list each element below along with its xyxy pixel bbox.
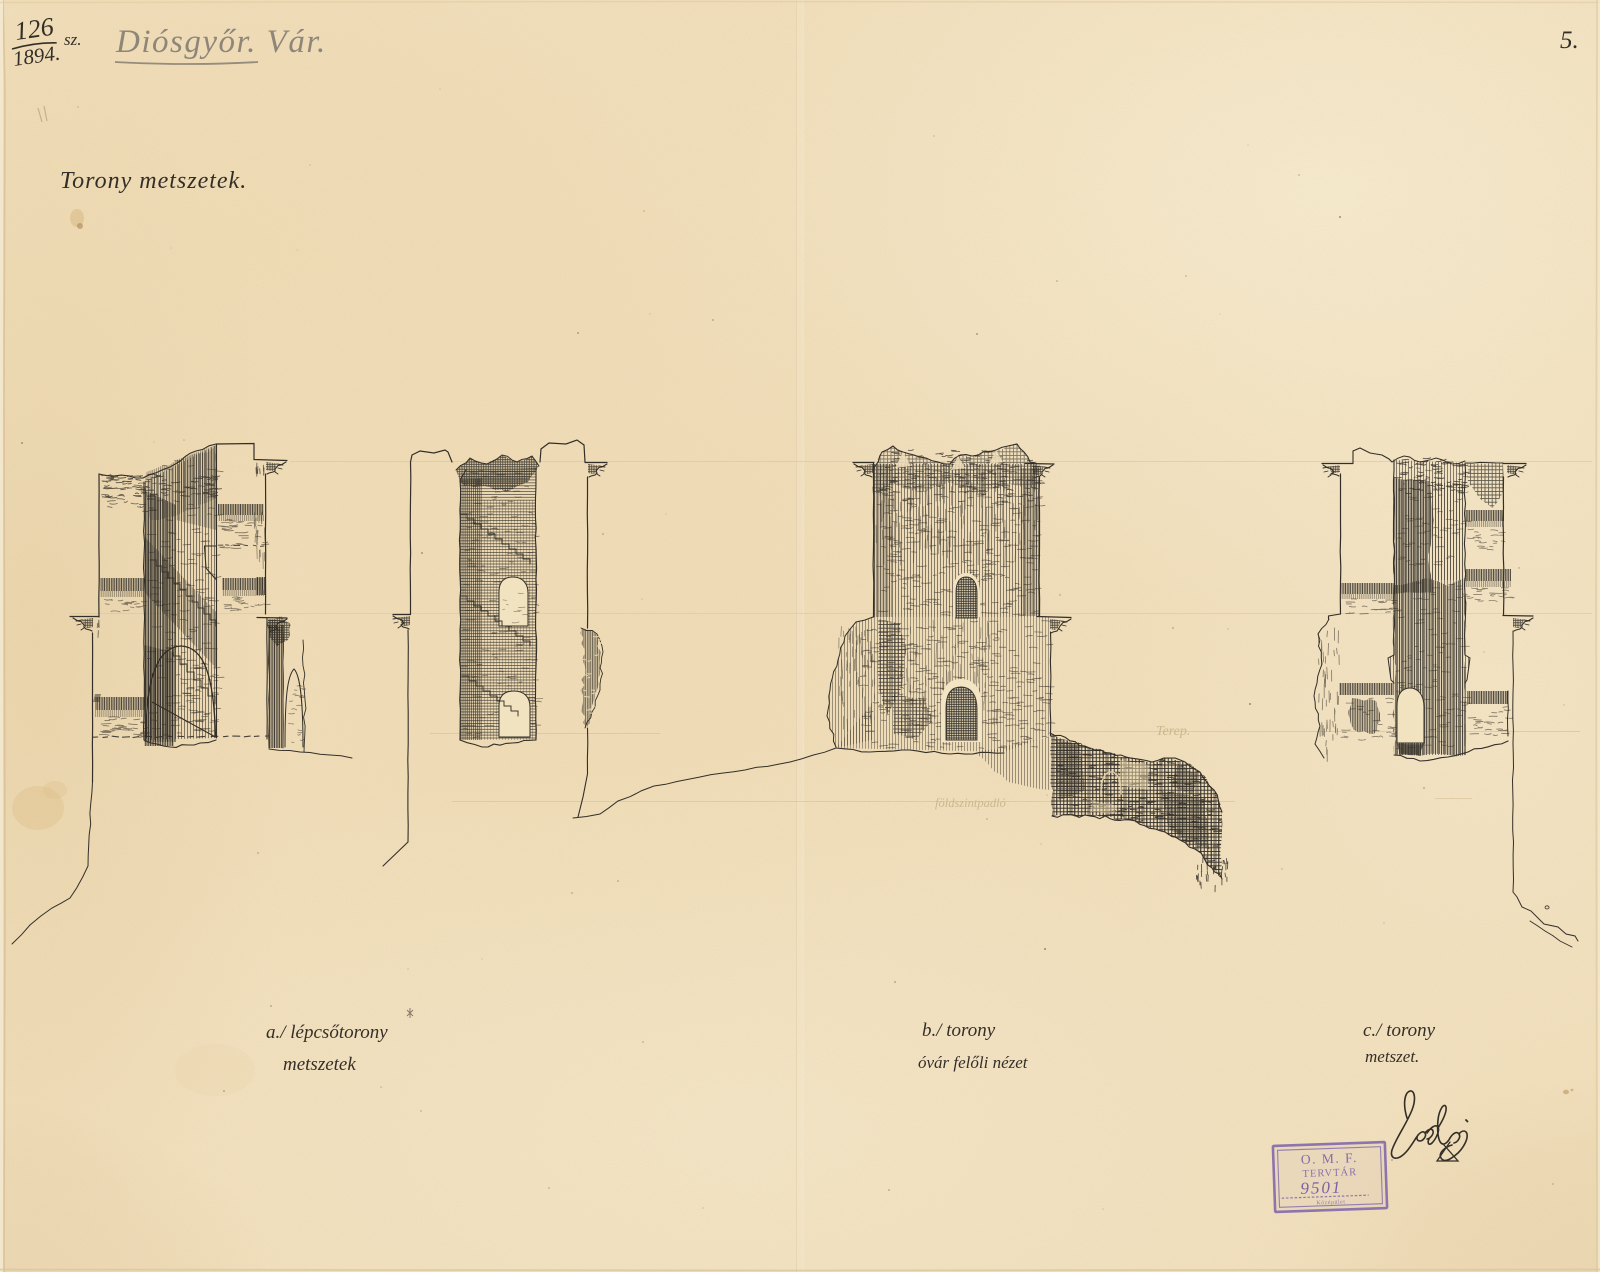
svg-text:Diósgyőr. Vár.: Diósgyőr. Vár. <box>115 24 327 60</box>
svg-text:5.: 5. <box>1560 27 1579 54</box>
svg-text:c./ torony: c./ torony <box>1363 1020 1436 1041</box>
svg-text:9501: 9501 <box>1300 1178 1343 1198</box>
svg-text:b./ torony: b./ torony <box>922 1020 996 1041</box>
svg-text:O. M. F.: O. M. F. <box>1301 1150 1359 1167</box>
svg-text:sz.: sz. <box>64 30 81 49</box>
svg-text:óvár felőli nézet: óvár felőli nézet <box>918 1053 1029 1072</box>
svg-text:földszintpadló: földszintpadló <box>935 796 1007 810</box>
svg-text:metszetek: metszetek <box>283 1054 356 1075</box>
svg-text:Középület: Középület <box>1316 1199 1345 1206</box>
svg-text:a./ lépcsőtorony: a./ lépcsőtorony <box>266 1022 388 1043</box>
svg-text:Terep.: Terep. <box>1156 724 1190 739</box>
svg-text:126: 126 <box>13 12 56 46</box>
svg-text:Torony metszetek.: Torony metszetek. <box>60 168 247 194</box>
svg-text:metszet.: metszet. <box>1365 1047 1419 1066</box>
